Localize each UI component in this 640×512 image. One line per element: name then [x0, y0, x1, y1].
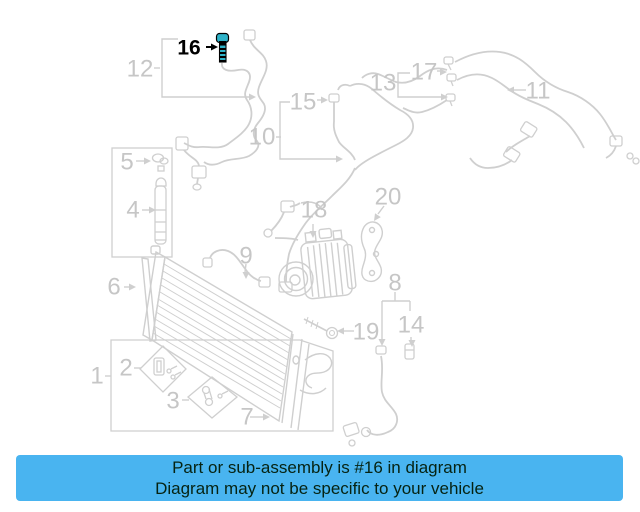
- mount-kit-3: [188, 377, 237, 418]
- part-label-4[interactable]: 4: [126, 197, 139, 224]
- part-label-16[interactable]: 16: [177, 37, 200, 60]
- part-label-7[interactable]: 7: [240, 404, 253, 431]
- valve-17: [444, 57, 453, 64]
- ac-parts-diagram: 1234567891011121314151617181920: [0, 0, 640, 512]
- pipe12-top-connector: [244, 30, 255, 40]
- bracket-12: [162, 39, 249, 97]
- part-label-12[interactable]: 12: [127, 56, 154, 83]
- valve-15: [329, 94, 339, 102]
- pressure-sensor: [376, 346, 386, 354]
- part-label-2[interactable]: 2: [119, 355, 132, 382]
- receiver-drier: [153, 154, 169, 244]
- notice-line-1: Part or sub-assembly is #16 in diagram: [16, 457, 623, 478]
- part-label-15[interactable]: 15: [290, 89, 317, 116]
- part-label-9[interactable]: 9: [239, 243, 252, 270]
- part-label-17[interactable]: 17: [411, 59, 438, 86]
- sensor-hose-14: [343, 344, 414, 446]
- part-label-5[interactable]: 5: [120, 149, 133, 176]
- mount-kit-2: [140, 346, 186, 392]
- part-label-13[interactable]: 13: [370, 70, 397, 97]
- part-label-18[interactable]: 18: [301, 197, 328, 224]
- part-label-6[interactable]: 6: [107, 274, 120, 301]
- hose-9: [203, 250, 270, 287]
- part-label-11[interactable]: 11: [526, 78, 551, 105]
- part-label-1[interactable]: 1: [90, 363, 103, 390]
- part-label-19[interactable]: 19: [353, 319, 380, 346]
- bolt-19: [304, 317, 338, 339]
- condenser-mount-arm: [305, 354, 332, 388]
- pressure-switch: [405, 344, 414, 359]
- part-label-10[interactable]: 10: [249, 124, 276, 151]
- condenser-right-tank: [282, 334, 293, 423]
- notice-banner: Part or sub-assembly is #16 in diagram D…: [16, 455, 623, 501]
- compressor: [279, 226, 357, 299]
- part-label-14[interactable]: 14: [398, 312, 425, 339]
- parts-diagram-viewer: 1234567891011121314151617181920 Part or …: [0, 0, 640, 512]
- part-label-3[interactable]: 3: [166, 388, 179, 415]
- pipe-assembly-11: [444, 51, 639, 168]
- compressor-bracket: [361, 222, 382, 281]
- part-label-8[interactable]: 8: [388, 270, 401, 297]
- highlighted-part-16[interactable]: [206, 34, 229, 63]
- notice-line-2: Diagram may not be specific to your vehi…: [16, 478, 623, 499]
- part-label-20[interactable]: 20: [375, 184, 402, 211]
